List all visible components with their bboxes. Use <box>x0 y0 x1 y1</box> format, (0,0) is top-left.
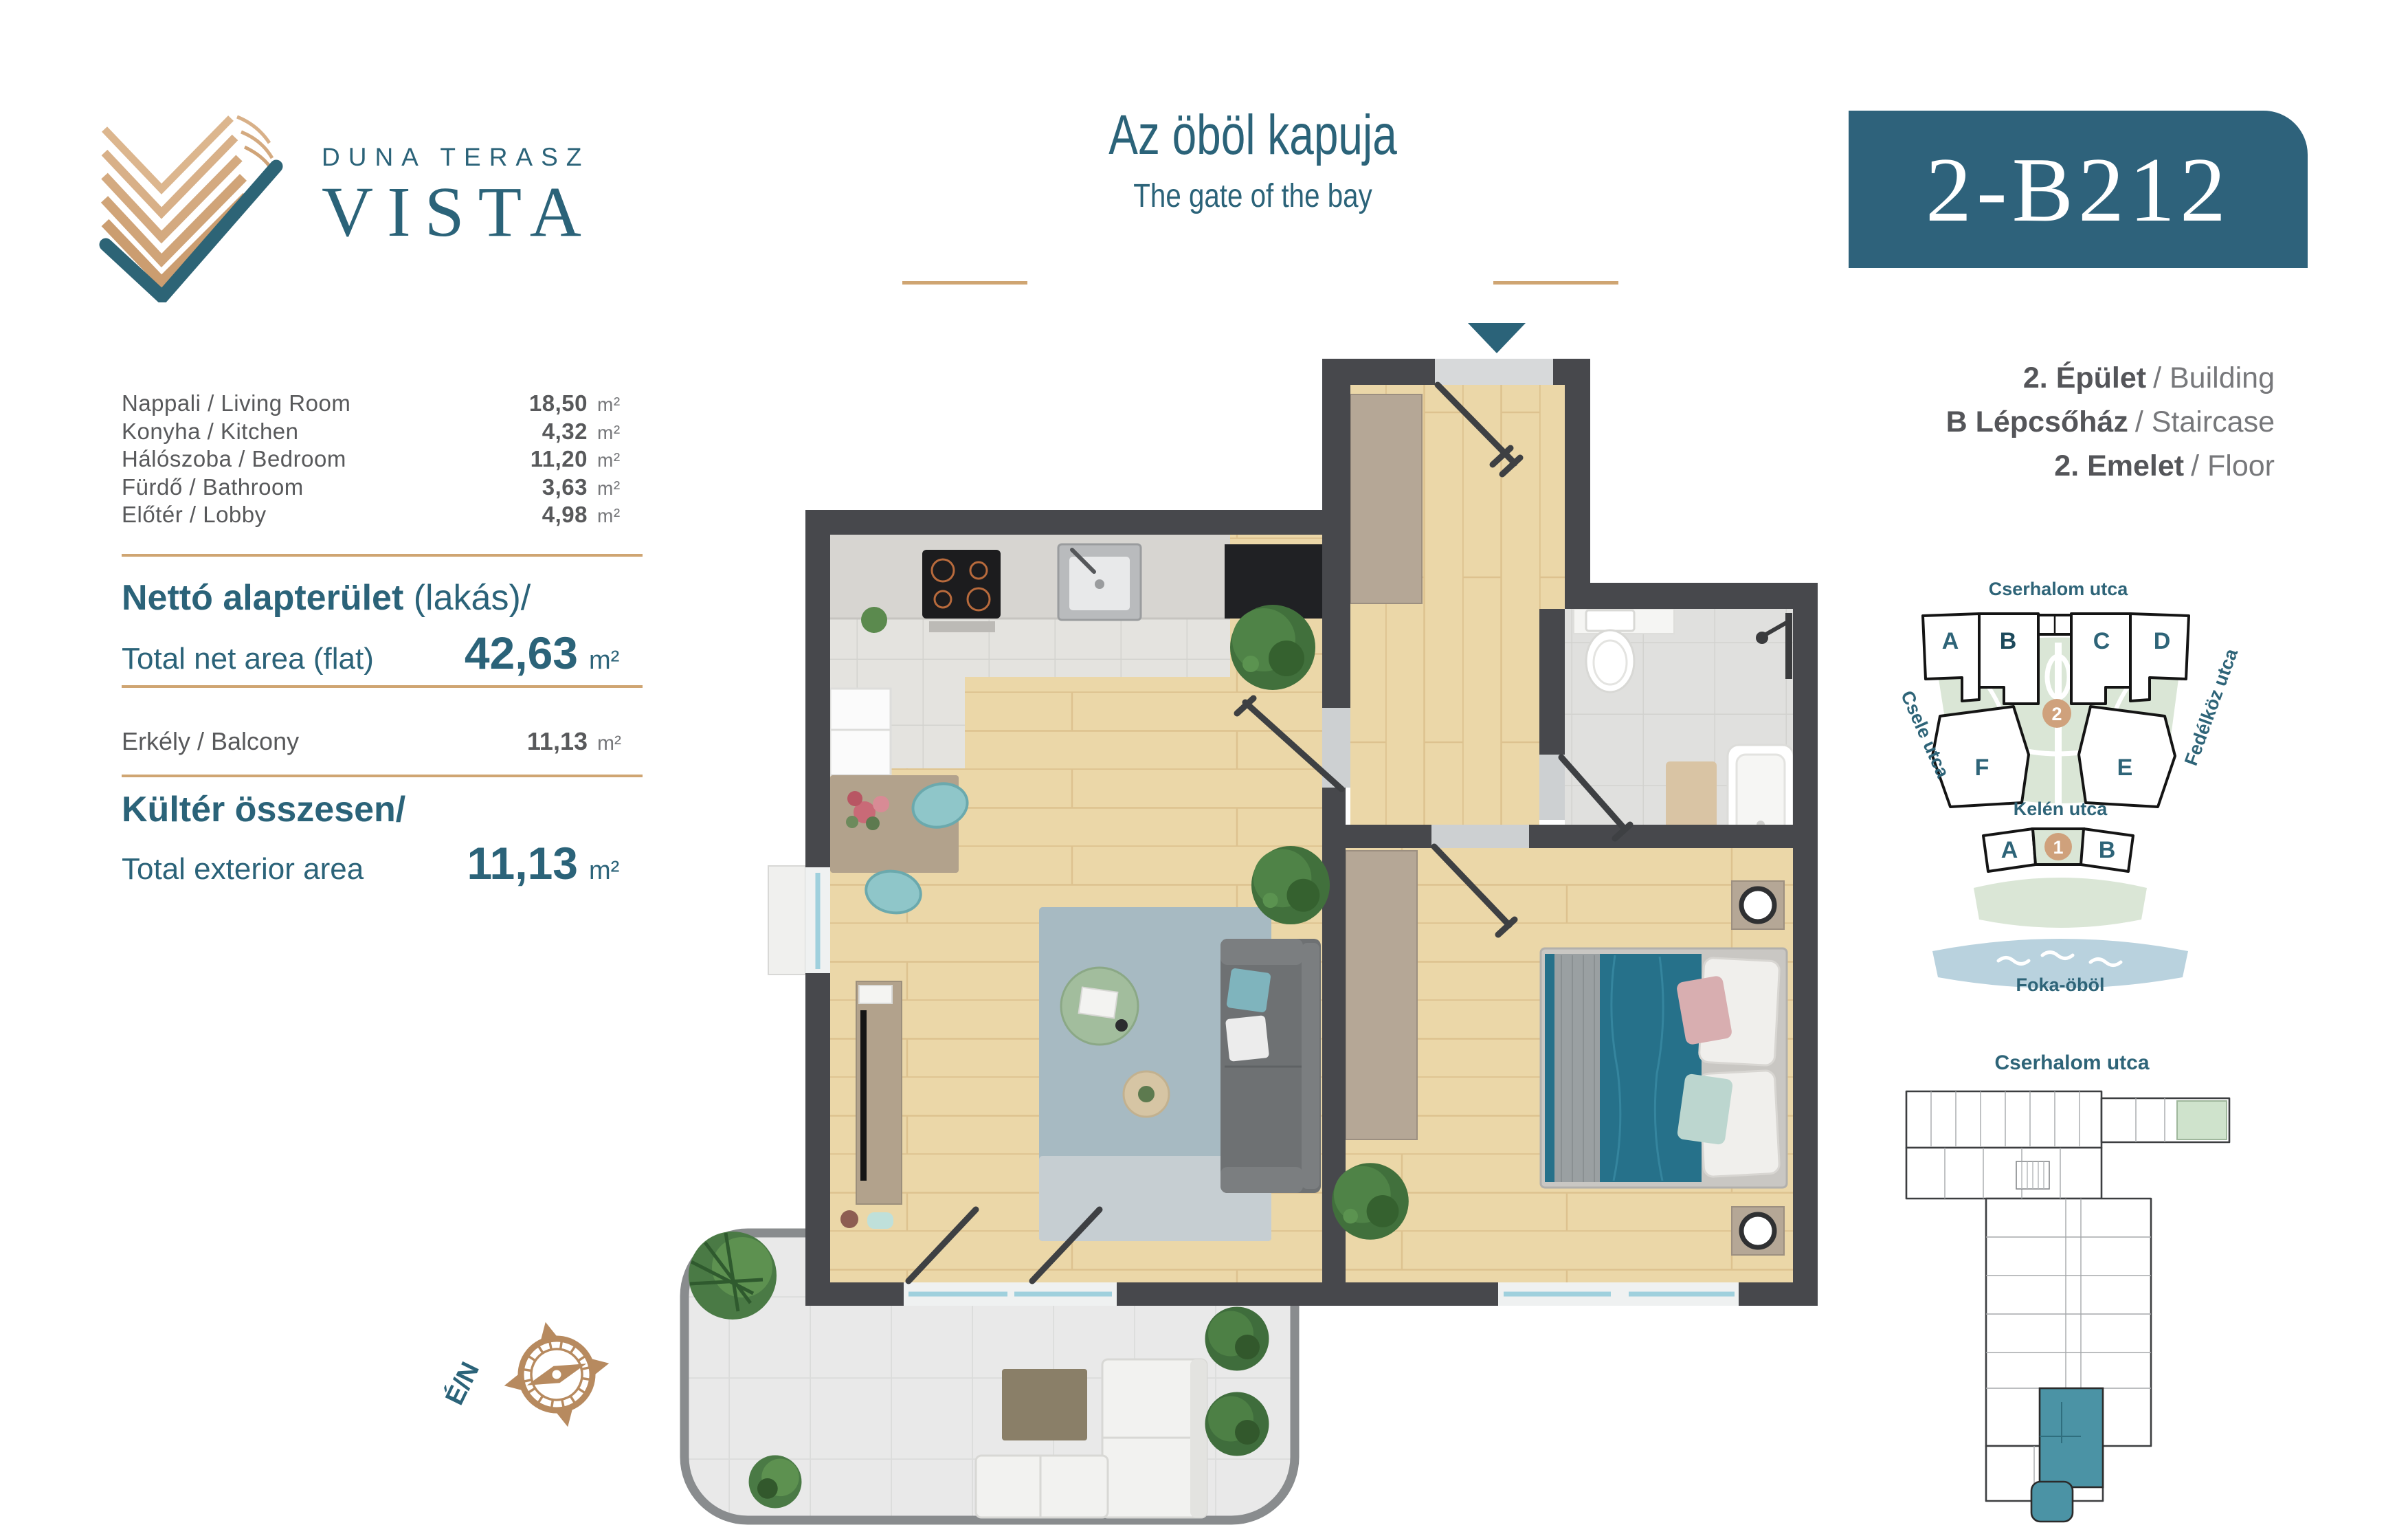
magazines <box>859 986 892 1003</box>
room-area-value: 4,98 <box>498 502 588 528</box>
room-area-unit: m² <box>597 420 643 447</box>
bedroom-wardrobe <box>1346 851 1417 1139</box>
brand-name: VISTA <box>322 175 595 249</box>
balcony-value: 11,13 <box>527 727 588 756</box>
tv <box>860 1010 867 1181</box>
decor-plate <box>840 1210 858 1228</box>
staircase-en: / Staircase <box>2135 405 2275 438</box>
net-area-title: Nettó alapterület (lakás)/ <box>122 577 531 619</box>
room-area-unit: m² <box>597 476 643 502</box>
room-label: Konyha / Kitchen <box>122 419 498 445</box>
bedroom-door-threshold <box>1431 825 1529 848</box>
toilet <box>1586 610 1634 692</box>
plant-icon <box>1251 846 1330 924</box>
label-building-d: D <box>2154 628 2171 654</box>
title-ornament-right <box>1493 281 1618 285</box>
room-area-list: Nappali / Living Room 18,50 m² Konyha / … <box>122 390 643 530</box>
balcony-plant-icon <box>1205 1307 1269 1371</box>
area-row-lobby: Előtér / Lobby 4,98 m² <box>122 502 643 530</box>
balcony-plant-icon <box>1205 1392 1269 1456</box>
brand-logo: DUNA TERASZ VISTA <box>96 110 595 302</box>
bed <box>1541 948 1787 1188</box>
area-row-kitchen: Konyha / Kitchen 4,32 m² <box>122 419 643 447</box>
window-ledge <box>768 866 805 975</box>
street-kelen: Kelén utca <box>2014 799 2108 819</box>
kitchen-plant-icon <box>861 607 887 633</box>
decor-dish <box>867 1212 893 1229</box>
balcony-plant-icon <box>749 1456 802 1509</box>
area-row-bathroom: Fürdő / Bathroom 3,63 m² <box>122 474 643 502</box>
accent-pillow-mint <box>1677 1073 1734 1146</box>
north-label: É/N <box>440 1358 485 1410</box>
room-area-unit: m² <box>597 503 643 530</box>
highlighted-unit <box>2040 1388 2103 1487</box>
exterior-title: Kültér összesen/ <box>122 789 405 830</box>
room-label: Fürdő / Bathroom <box>122 474 498 501</box>
net-area-label-en: Total net area (flat) <box>122 642 465 676</box>
logo-chevron-icon <box>96 110 302 302</box>
building-info: 2. Épület/ Building B Lépcsőház/ Stairca… <box>1787 356 2275 488</box>
floor-plan-sheet: DUNA TERASZ VISTA Az öböl kapuja The gat… <box>0 0 2408 1525</box>
net-area-title-suffix: (lakás)/ <box>403 578 531 618</box>
stairs-icon <box>2016 1161 2049 1189</box>
side-table <box>1124 1071 1169 1117</box>
sofa <box>1220 939 1321 1193</box>
pillow-teal <box>1226 968 1271 1013</box>
title-english: The gate of the bay <box>1003 177 1502 215</box>
building-en: / Building <box>2153 361 2275 394</box>
building-line: 2. Épület/ Building <box>1787 356 2275 400</box>
staircase-line: B Lépcsőház/ Staircase <box>1787 400 2275 444</box>
label-building-e: E <box>2117 755 2133 781</box>
cooktop-vent <box>929 621 995 632</box>
project-title: Az öböl kapuja The gate of the bay <box>955 103 1550 215</box>
room-area-unit: m² <box>597 447 643 474</box>
lawn <box>1974 878 2147 928</box>
level-plan-building <box>1906 1091 2229 1522</box>
nightstand-top <box>1732 881 1784 929</box>
pillow-white <box>1225 1015 1269 1062</box>
floor-hu: 2. Emelet <box>2054 449 2184 482</box>
exterior-area-row: Total exterior area 11,13 m² <box>122 837 643 889</box>
room-area-value: 4,32 <box>498 419 588 445</box>
label-building-f: F <box>1975 755 1989 781</box>
phase-1-label: 1 <box>2053 837 2063 858</box>
brand-tagline: DUNA TERASZ <box>322 143 595 172</box>
bathroom-door-threshold <box>1539 755 1565 820</box>
net-area-title-hu: Nettó alapterület <box>122 578 403 618</box>
building-hu: 2. Épület <box>2023 361 2146 394</box>
unit-code: 2-B212 <box>1926 137 2231 243</box>
balcony-plant-icon <box>689 1232 777 1320</box>
area-row-bedroom: Hálószoba / Bedroom 11,20 m² <box>122 446 643 474</box>
floor-line: 2. Emelet/ Floor <box>1787 444 2275 488</box>
coffee-table <box>1061 968 1138 1045</box>
title-ornament-left <box>902 281 1027 285</box>
staircase-hu: B Lépcsőház <box>1946 405 2128 438</box>
balcony-unit: m² <box>597 732 643 755</box>
room-label: Előtér / Lobby <box>122 502 498 528</box>
room-label: Nappali / Living Room <box>122 390 498 417</box>
label-lower-b: B <box>2099 837 2116 863</box>
roof-garden <box>2177 1101 2227 1139</box>
plant-icon <box>1332 1163 1409 1240</box>
site-map: A B C D F E 2 A B 1 Cserhalom utca Csele… <box>1855 570 2295 997</box>
divider <box>122 554 643 557</box>
room-area-value: 11,20 <box>498 446 588 473</box>
fridge <box>830 689 891 775</box>
label-building-a: A <box>1942 628 1959 654</box>
exterior-unit: m² <box>589 856 643 886</box>
label-building-b: B <box>2000 628 2017 654</box>
label-building-c: C <box>2093 628 2110 654</box>
balcony-label: Erkély / Balcony <box>122 727 527 756</box>
compass-icon <box>481 1302 632 1447</box>
outdoor-table <box>1002 1369 1087 1440</box>
exterior-value: 11,13 <box>467 837 578 889</box>
title-hungarian: Az öböl kapuja <box>1021 103 1484 168</box>
label-foka-obol: Foka-öböl <box>2016 975 2105 995</box>
phone <box>1115 1019 1128 1032</box>
phase-2-label: 2 <box>2051 704 2062 724</box>
divider <box>122 685 643 688</box>
lobby-wardrobe <box>1350 394 1422 603</box>
net-area-value: 42,63 <box>465 627 578 679</box>
plant-icon <box>1230 605 1315 690</box>
balcony-area-row: Erkély / Balcony 11,13 m² <box>122 727 643 756</box>
highlighted-unit-balcony <box>2031 1482 2073 1522</box>
room-area-value: 3,63 <box>498 474 588 501</box>
street-cserhalom: Cserhalom utca <box>1989 579 2129 599</box>
room-area-value: 18,50 <box>498 390 588 417</box>
entrance-threshold <box>1435 359 1553 385</box>
floor-en: / Floor <box>2191 449 2275 482</box>
kitchen-sink <box>1058 544 1141 620</box>
net-area-unit: m² <box>589 646 643 676</box>
level-plan: Cserhalom utca <box>1876 1045 2261 1525</box>
room-area-unit: m² <box>597 392 643 419</box>
apartment-floor-plan <box>653 296 1857 1525</box>
net-area-row: Total net area (flat) 42,63 m² <box>122 627 643 679</box>
room-label: Hálószoba / Bedroom <box>122 446 498 473</box>
label-lower-a: A <box>2001 837 2018 863</box>
area-row-living: Nappali / Living Room 18,50 m² <box>122 390 643 419</box>
nightstand-bottom <box>1732 1207 1784 1255</box>
divider <box>122 775 643 777</box>
street-fedelkoz: Fedélköz utca <box>2181 645 2242 768</box>
unit-code-badge: 2-B212 <box>1849 111 2308 268</box>
exterior-label-en: Total exterior area <box>122 852 467 887</box>
cooktop <box>922 550 1001 619</box>
level-plan-street: Cserhalom utca <box>1994 1051 2149 1074</box>
entrance-arrow-icon <box>1468 323 1526 353</box>
book <box>1079 988 1118 1018</box>
